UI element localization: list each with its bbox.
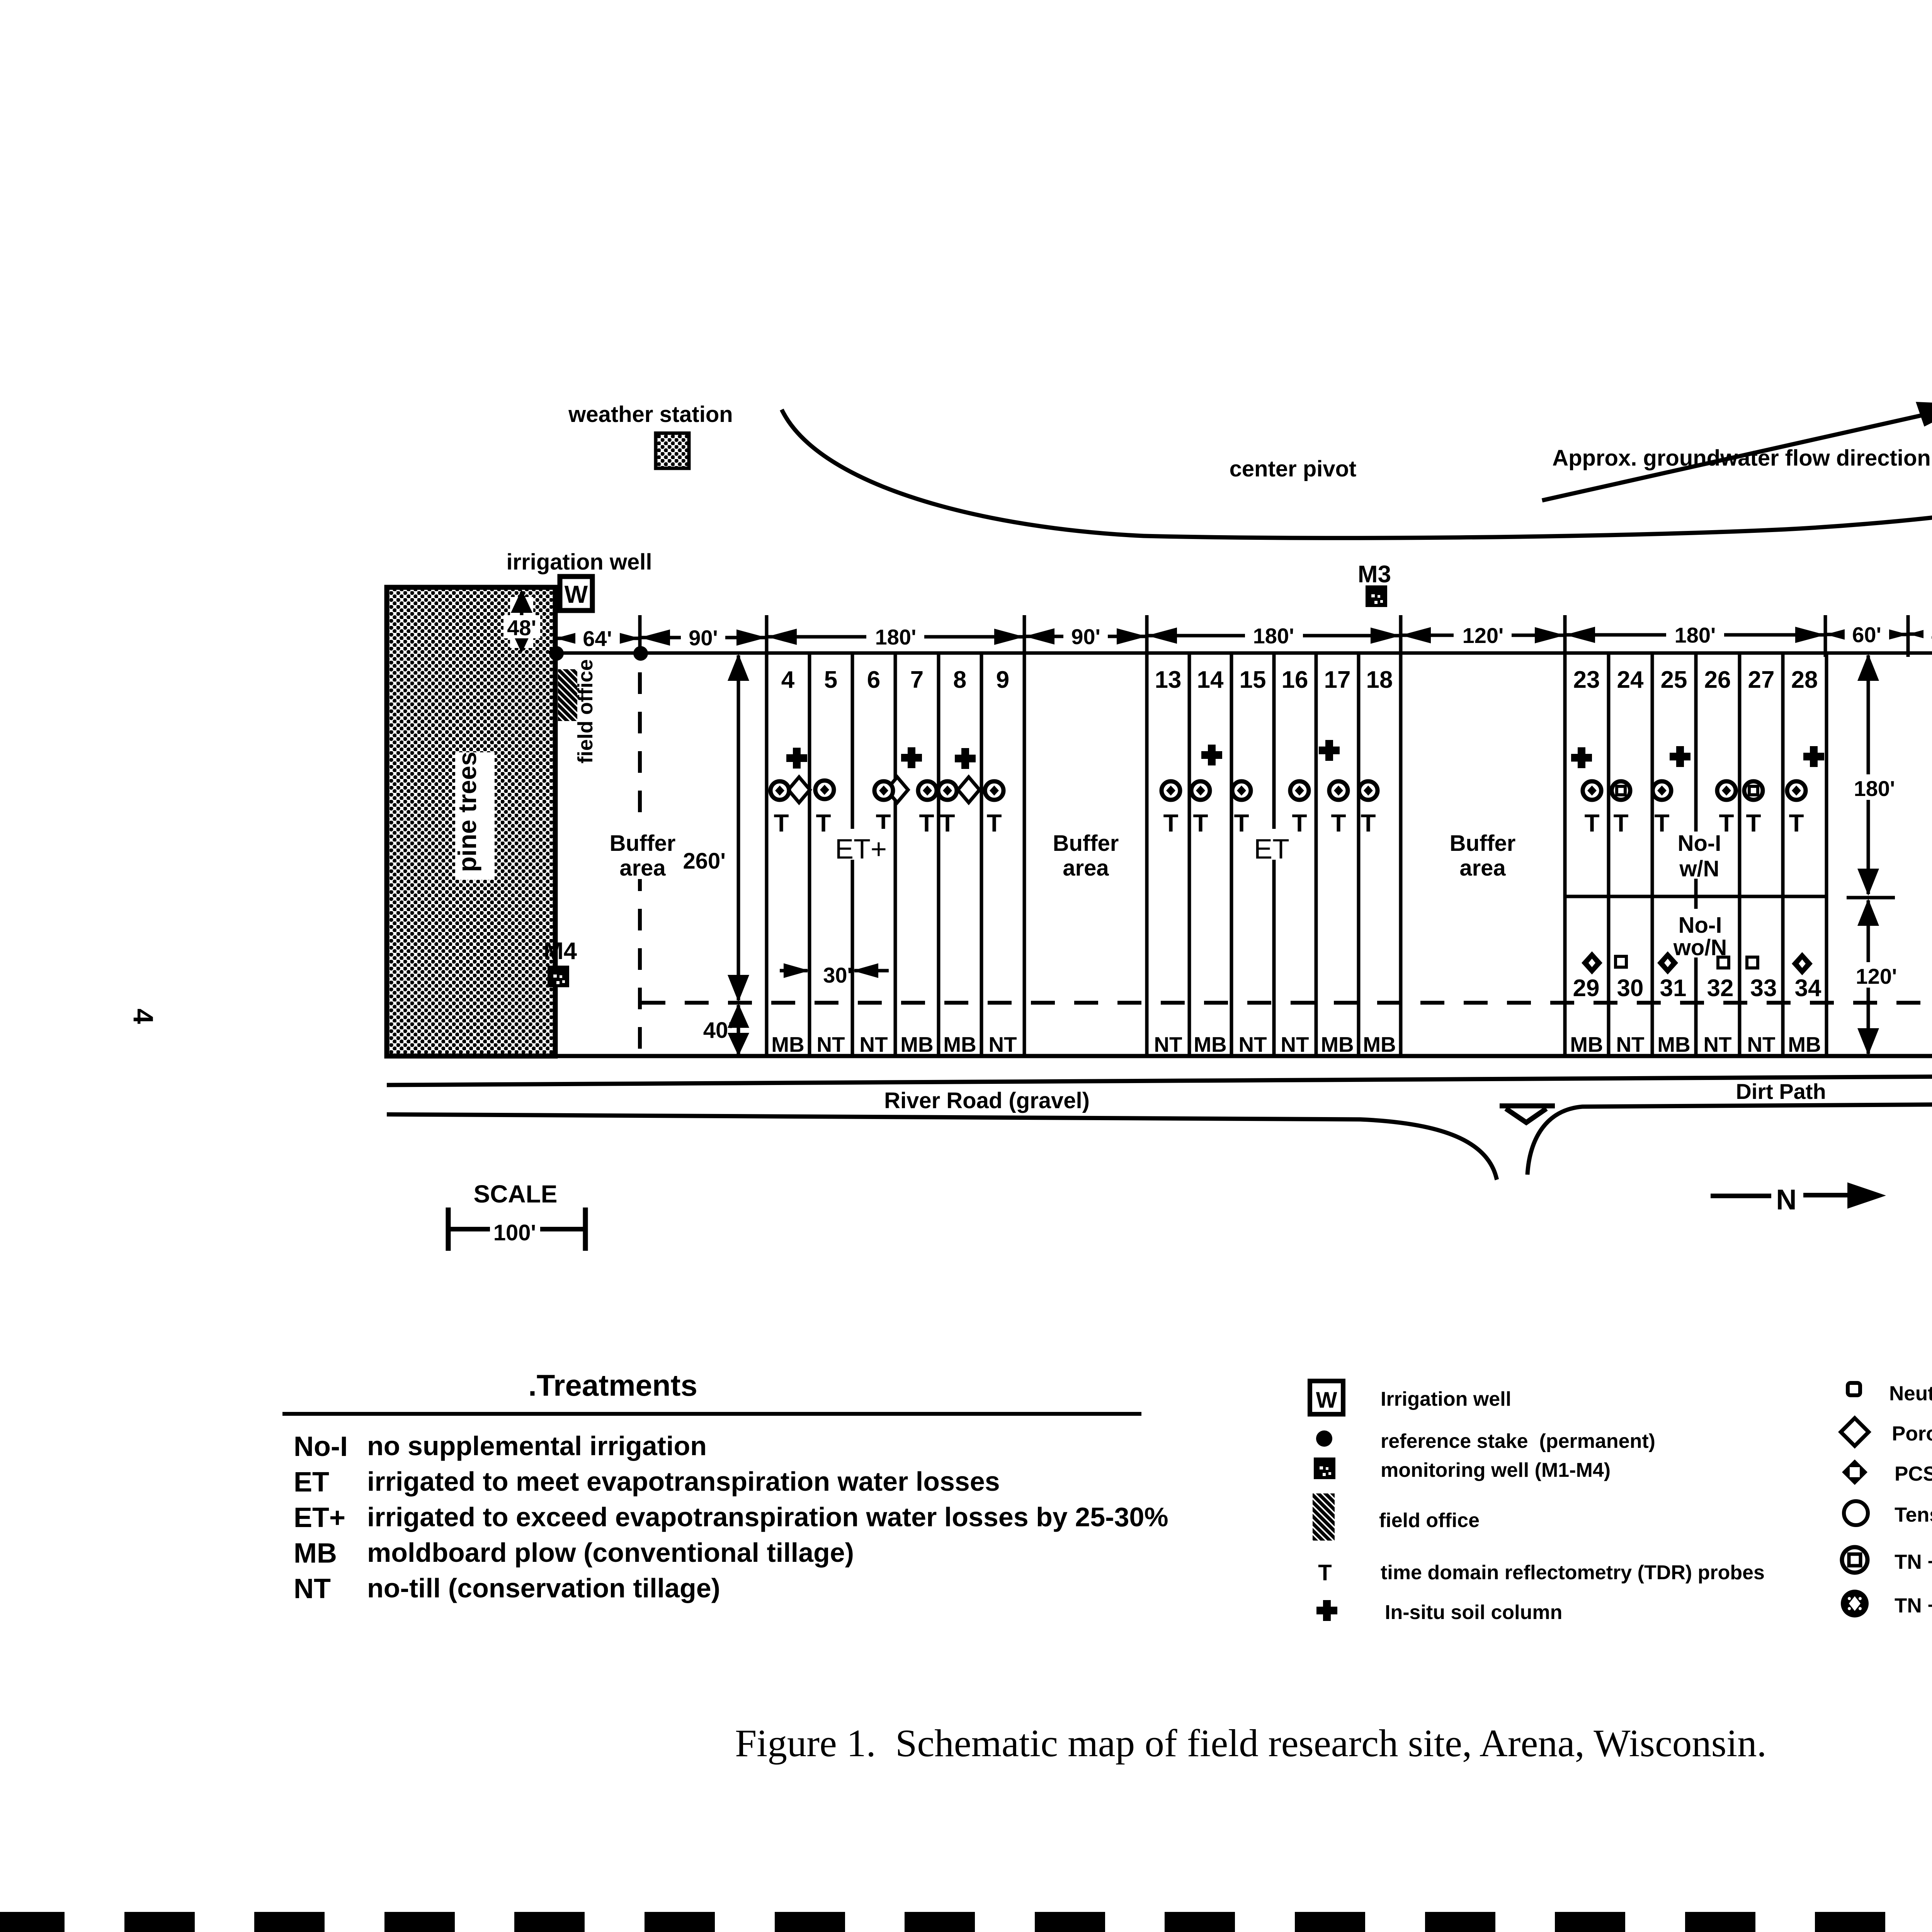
svg-text:18: 18: [1366, 667, 1393, 693]
svg-text:T: T: [919, 809, 934, 837]
svg-text:NT: NT: [1616, 1032, 1644, 1056]
svg-text:irrigation well: irrigation well: [506, 549, 652, 575]
svg-text:33: 33: [1750, 975, 1777, 1002]
svg-text:48': 48': [507, 616, 536, 640]
svg-text:MB: MB: [1657, 1032, 1690, 1056]
svg-text:T: T: [940, 809, 955, 837]
svg-text:No-I: No-I: [1679, 913, 1722, 938]
svg-text:irrigated to exceed evapotrans: irrigated to exceed evapotranspiration w…: [367, 1502, 1168, 1532]
svg-text:area: area: [1459, 855, 1506, 881]
svg-text:pine trees: pine trees: [453, 752, 481, 872]
svg-text:T: T: [1331, 809, 1346, 837]
svg-text:MB: MB: [771, 1032, 804, 1056]
svg-text:field office: field office: [1379, 1509, 1480, 1532]
svg-text:25: 25: [1661, 667, 1687, 693]
svg-text:30: 30: [1617, 975, 1644, 1002]
svg-text:180': 180': [875, 625, 917, 649]
svg-text:Dirt Path: Dirt Path: [1736, 1079, 1826, 1104]
svg-text:Irrigation well: Irrigation well: [1381, 1388, 1511, 1410]
svg-text:No-I: No-I: [294, 1431, 348, 1462]
svg-text:NT: NT: [1703, 1032, 1731, 1056]
svg-text:area: area: [619, 855, 666, 881]
svg-text:17: 17: [1324, 667, 1351, 693]
svg-text:15: 15: [1240, 667, 1266, 693]
svg-text:90': 90': [689, 626, 718, 650]
svg-text:ET: ET: [1254, 834, 1289, 865]
svg-text:time domain reflectometry (TDR: time domain reflectometry (TDR) probes: [1381, 1561, 1765, 1584]
svg-text:No-I: No-I: [1678, 831, 1721, 856]
svg-text:40': 40': [703, 1018, 733, 1043]
svg-text:.Treatments: .Treatments: [528, 1368, 697, 1402]
svg-text:100': 100': [493, 1220, 536, 1245]
svg-text:NT: NT: [859, 1032, 888, 1056]
svg-text:120': 120': [1856, 964, 1897, 988]
svg-text:NT: NT: [1238, 1032, 1267, 1056]
svg-text:River Road (gravel): River Road (gravel): [884, 1088, 1090, 1113]
svg-text:31: 31: [1660, 975, 1687, 1002]
svg-text:T: T: [1584, 809, 1599, 837]
svg-text:Approx. groundwater flow direc: Approx. groundwater flow direction: [1552, 446, 1931, 471]
svg-text:24: 24: [1617, 667, 1644, 693]
svg-text:90': 90': [1071, 624, 1100, 649]
svg-text:180': 180': [1253, 624, 1294, 648]
svg-text:T: T: [986, 809, 1002, 837]
svg-text:ET+: ET+: [835, 834, 887, 865]
svg-text:29: 29: [1573, 975, 1600, 1002]
svg-text:Buffer: Buffer: [1450, 831, 1516, 856]
svg-text:Tensiometer nest (TN): Tensiometer nest (TN): [1895, 1503, 1932, 1526]
svg-text:W: W: [565, 580, 588, 608]
svg-text:T: T: [774, 809, 789, 837]
svg-text:MB: MB: [1194, 1032, 1227, 1056]
svg-text:MB: MB: [294, 1538, 337, 1569]
svg-text:N: N: [1776, 1184, 1796, 1216]
svg-text:Buffer: Buffer: [1053, 831, 1119, 856]
svg-text:MB: MB: [900, 1032, 934, 1056]
svg-text:Neutron moisture-probe access: Neutron moisture-probe access tube (NMP): [1889, 1382, 1932, 1405]
svg-text:T: T: [1234, 809, 1249, 837]
svg-text:7: 7: [910, 667, 923, 693]
svg-text:9: 9: [996, 667, 1009, 693]
svg-text:27: 27: [1748, 667, 1775, 693]
svg-text:NT: NT: [816, 1032, 845, 1056]
svg-text:T: T: [1654, 809, 1669, 837]
svg-text:T: T: [816, 809, 831, 837]
svg-text:ET+: ET+: [294, 1502, 345, 1533]
svg-text:T: T: [1613, 809, 1628, 837]
svg-text:8: 8: [953, 667, 966, 693]
svg-text:13: 13: [1155, 667, 1182, 693]
svg-text:Buffer: Buffer: [610, 831, 676, 856]
svg-text:W: W: [1316, 1388, 1337, 1413]
svg-text:TN + PCS + NMP: TN + PCS + NMP: [1895, 1594, 1932, 1617]
svg-text:M3: M3: [1358, 561, 1391, 588]
svg-text:32: 32: [1707, 975, 1734, 1002]
svg-text:120': 120': [1463, 623, 1504, 648]
svg-text:MB: MB: [1363, 1032, 1396, 1056]
svg-text:64': 64': [583, 626, 612, 651]
svg-text:T: T: [1361, 809, 1376, 837]
svg-text:MB: MB: [943, 1032, 976, 1056]
svg-text:T: T: [1746, 809, 1761, 837]
svg-text:w/N: w/N: [1679, 856, 1719, 881]
svg-text:23: 23: [1573, 667, 1600, 693]
svg-text:monitoring well (M1-M4): monitoring well (M1-M4): [1381, 1459, 1611, 1481]
svg-text:NT: NT: [988, 1032, 1017, 1056]
svg-text:180': 180': [1675, 623, 1716, 647]
svg-text:NT: NT: [1281, 1032, 1309, 1056]
svg-text:no supplemental irrigation: no supplemental irrigation: [367, 1431, 707, 1461]
svg-text:NT: NT: [1154, 1032, 1182, 1056]
svg-text:30': 30': [823, 963, 852, 987]
svg-text:T: T: [1318, 1560, 1332, 1585]
svg-text:NT: NT: [294, 1573, 331, 1604]
svg-text:16: 16: [1282, 667, 1308, 693]
svg-text:180': 180': [1854, 776, 1895, 801]
svg-text:M4: M4: [544, 938, 577, 964]
svg-text:no-till (conservation tillage): no-till (conservation tillage): [367, 1573, 720, 1603]
svg-text:T: T: [1789, 809, 1804, 837]
svg-text:MB: MB: [1570, 1032, 1603, 1056]
svg-text:MB: MB: [1321, 1032, 1354, 1056]
svg-text:irrigated to meet evapotranspi: irrigated to meet evapotranspiration wat…: [367, 1466, 1000, 1497]
svg-text:34: 34: [1795, 975, 1821, 1002]
svg-text:28: 28: [1791, 667, 1818, 693]
svg-text:ET: ET: [294, 1467, 329, 1498]
svg-text:weather station: weather station: [568, 402, 733, 427]
svg-text:field office: field office: [574, 659, 597, 764]
svg-text:Figure 1. Schematic map of fi: Figure 1. Schematic map of field researc…: [735, 1721, 1767, 1765]
svg-text:T: T: [1193, 809, 1208, 837]
svg-text:6: 6: [867, 667, 880, 693]
svg-text:26: 26: [1704, 667, 1731, 693]
svg-text:T: T: [1163, 809, 1178, 837]
svg-text:5: 5: [824, 667, 837, 693]
svg-text:TN + NMP: TN + NMP: [1895, 1551, 1932, 1573]
svg-text:260': 260': [683, 849, 726, 874]
svg-text:moldboard plow (conventional t: moldboard plow (conventional tillage): [367, 1537, 854, 1568]
svg-text:In-situ soil column: In-situ soil column: [1385, 1601, 1562, 1624]
svg-text:PCS + NMP: PCS + NMP: [1895, 1463, 1932, 1485]
svg-text:SCALE: SCALE: [474, 1180, 558, 1208]
svg-text:14: 14: [1197, 667, 1224, 693]
svg-text:reference stake (permanent): reference stake (permanent): [1381, 1430, 1655, 1452]
svg-text:T: T: [1292, 809, 1307, 837]
svg-text:Porous-cup sampler (PCS): Porous-cup sampler (PCS): [1892, 1422, 1932, 1445]
svg-text:area: area: [1063, 855, 1109, 881]
svg-text:center pivot: center pivot: [1230, 456, 1357, 481]
svg-text:4: 4: [781, 667, 795, 693]
svg-text:NT: NT: [1747, 1032, 1775, 1056]
svg-text:60': 60': [1852, 622, 1881, 647]
svg-text:MB: MB: [1788, 1032, 1821, 1056]
svg-text:4: 4: [128, 1009, 158, 1024]
